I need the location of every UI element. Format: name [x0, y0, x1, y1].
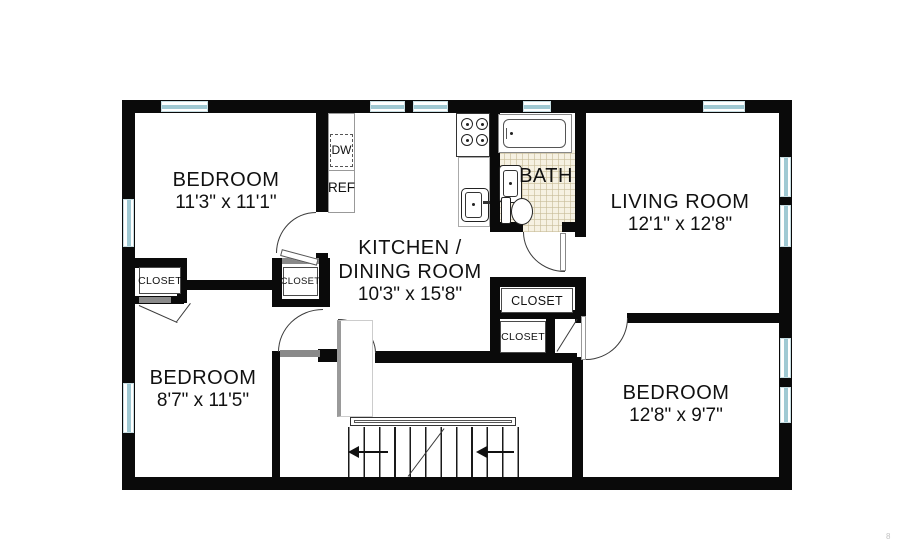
wall-closet4-right	[546, 318, 555, 354]
stair-arrow-left-2	[476, 446, 487, 458]
door-line-closet1-a	[139, 305, 178, 323]
window-kitchen-top-2	[413, 101, 448, 112]
room-label-living: LIVING ROOM 12'1" x 12'8"	[580, 190, 780, 237]
wall-outer-top	[122, 100, 792, 113]
closet-box-4: CLOSET	[500, 321, 546, 353]
toilet-icon	[511, 198, 533, 225]
kitchen-faucet-icon	[483, 201, 490, 204]
toilet-tank	[501, 197, 511, 224]
bedroom-bl-dims: 8'7" x 11'5"	[103, 390, 303, 413]
closet-label-4: CLOSET	[501, 331, 545, 343]
bathtub-drain	[510, 132, 513, 135]
wall-bedroombr-top	[627, 313, 779, 323]
kitchen-name-line1: KITCHEN /	[310, 236, 510, 260]
floor-plan: DW REF CLOSET CLOSET	[0, 0, 904, 556]
window-bedroomtl-top	[161, 101, 208, 112]
wall-bath-bottom-right	[562, 222, 575, 232]
door-line-closet1-b	[176, 303, 191, 323]
window-living-right-1	[780, 157, 791, 197]
wall-closet4-bottom	[493, 353, 577, 363]
door-panel-stairs	[337, 320, 373, 417]
window-kitchen-top-1	[370, 101, 405, 112]
door-arc-bath	[523, 232, 565, 272]
kitchen-name-line2: DINING ROOM	[310, 260, 510, 284]
sill-closet1	[139, 297, 171, 303]
living-dims: 12'1" x 12'8"	[580, 214, 780, 237]
room-label-bedroom-tl: BEDROOM 11'3" x 11'1"	[126, 168, 326, 215]
stair-handrail-inner	[354, 420, 512, 423]
door-panel-bath	[560, 233, 566, 271]
door-arc-bedroombr	[586, 318, 628, 360]
window-bedroombr-right-2	[780, 387, 791, 423]
wall-vestibule	[187, 280, 272, 290]
stair-arrow-left-1	[348, 446, 359, 458]
bedroom-tl-name: BEDROOM	[126, 168, 326, 192]
dishwasher-label: DW	[330, 143, 353, 159]
stair-arrow-line-1	[358, 451, 388, 453]
stove-burner	[461, 118, 473, 130]
refrigerator-label: REF	[328, 180, 355, 198]
bathtub-faucet-icon	[501, 128, 507, 139]
window-living-right-2	[780, 205, 791, 247]
living-name: LIVING ROOM	[580, 190, 780, 214]
room-label-kitchen-dining: KITCHEN / DINING ROOM 10'3" x 15'8"	[310, 236, 510, 307]
bath-name: BATH	[496, 164, 596, 188]
kitchen-sink-drain	[472, 203, 475, 206]
door-arc-hall	[278, 309, 323, 352]
stove-burner	[476, 134, 488, 146]
window-living-top	[703, 101, 745, 112]
room-label-bedroom-bl: BEDROOM 8'7" x 11'5"	[103, 366, 303, 413]
bedroom-bl-name: BEDROOM	[103, 366, 303, 390]
bedroom-br-name: BEDROOM	[576, 381, 776, 405]
closet-box-1: CLOSET	[139, 267, 181, 294]
closet-label-1: CLOSET	[138, 275, 182, 287]
stove-burner	[476, 118, 488, 130]
counter-divider	[329, 170, 355, 171]
page-mark: 8	[886, 532, 890, 541]
window-bedroombr-right-1	[780, 338, 791, 378]
window-bath-top	[523, 101, 551, 112]
closet-label-3: CLOSET	[511, 294, 563, 308]
room-label-bath: BATH	[496, 164, 596, 188]
closet-box-3: CLOSET	[501, 288, 573, 313]
stair-arrow-line-2	[486, 451, 514, 453]
wall-mid-kitchen-hall	[375, 351, 495, 363]
door-panel-bedroombr	[581, 316, 586, 360]
kitchen-dims: 10'3" x 15'8"	[310, 284, 510, 307]
stove-burner	[461, 134, 473, 146]
room-label-bedroom-br: BEDROOM 12'8" x 9'7"	[576, 381, 776, 428]
bedroom-tl-dims: 11'3" x 11'1"	[126, 192, 326, 215]
door-line-closet4	[557, 319, 578, 352]
bedroom-br-dims: 12'8" x 9'7"	[576, 405, 776, 428]
wall-outer-bottom	[122, 477, 792, 490]
